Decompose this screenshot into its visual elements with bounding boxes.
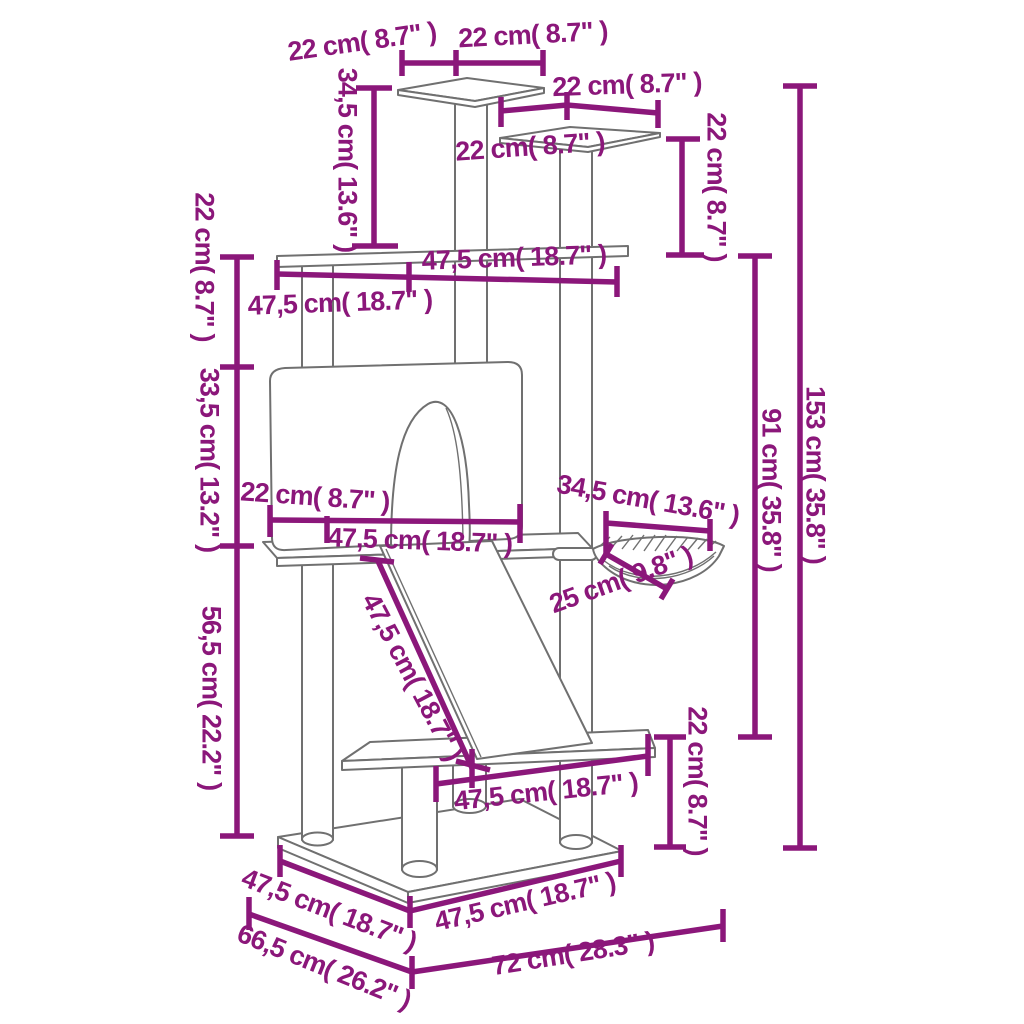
top-platform [398, 78, 544, 107]
dimension-diagram: 22 cm( 8.7" ) 22 cm( 8.7" ) 22 cm( 8.7" … [0, 0, 1024, 1024]
dim-label-house-width: 47,5 cm( 18.7" ) [327, 522, 513, 559]
mid-front-post [402, 757, 437, 870]
dim-label-plinth-height: 22 cm( 8.7" ) [682, 706, 713, 855]
dim-label-upper-gap-height: 22 cm( 8.7" ) [189, 192, 220, 341]
dim-label-top-post-height: 34,5 cm( 13.6" ) [332, 68, 363, 253]
dim-label-total-height: 153 cm( 35.8" ) [800, 386, 831, 564]
dim-label-house-height: 33,5 cm( 13.2" ) [194, 368, 225, 553]
left-lower-post [302, 556, 333, 840]
dim-label-mid-height: 91 cm( 35.8" ) [756, 408, 787, 572]
dim-label-upper-platform-width: 47,5 cm( 18.7" ) [247, 284, 433, 321]
dim-label-lower-section-height: 56,5 cm( 22.2" ) [196, 606, 227, 791]
basket-clamp [553, 548, 597, 560]
tall-post [560, 140, 592, 740]
dim-label-perch2-post-height: 22 cm( 8.7" ) [701, 112, 732, 261]
dim-label-perch2-width: 22 cm( 8.7" ) [552, 67, 702, 103]
dim-label-upper-platform-depth: 47,5 cm( 18.7" ) [421, 239, 607, 276]
